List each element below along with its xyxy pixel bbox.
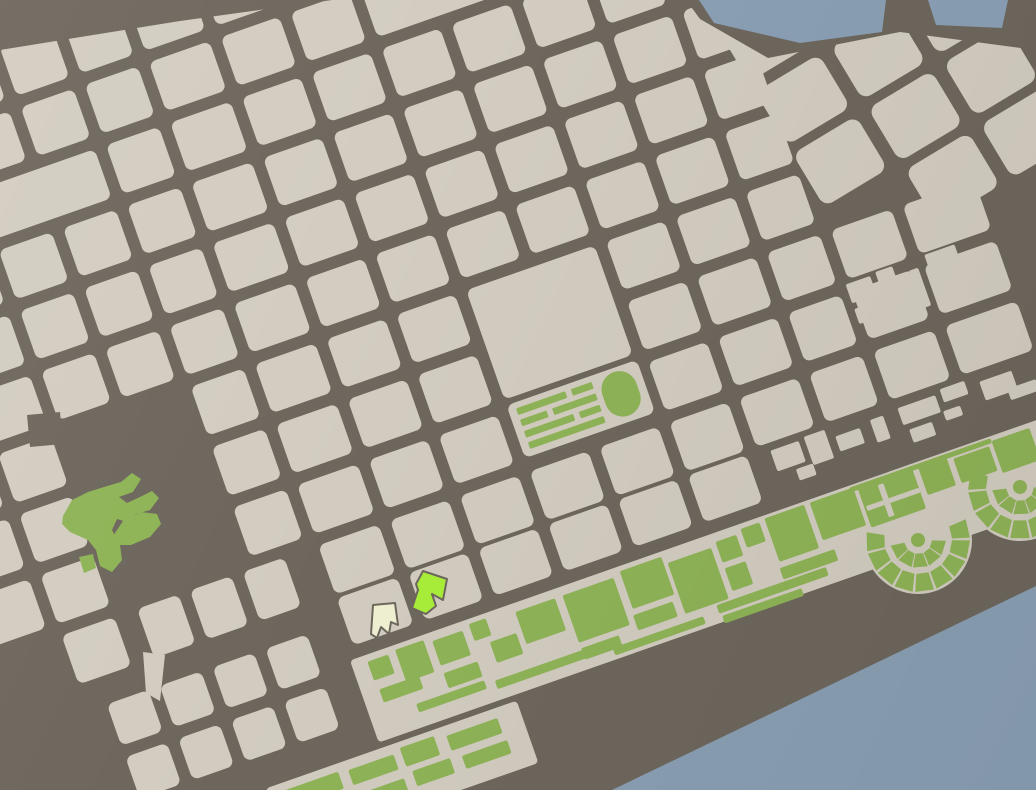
plaza-hub — [1013, 480, 1027, 494]
map-canvas[interactable] — [0, 0, 1036, 790]
plaza-hub — [911, 533, 925, 547]
plaza-ring-segment — [1010, 520, 1029, 538]
city-map-svg — [0, 0, 1036, 790]
river-bend-east — [928, 0, 1008, 28]
court-pocket — [27, 412, 63, 447]
